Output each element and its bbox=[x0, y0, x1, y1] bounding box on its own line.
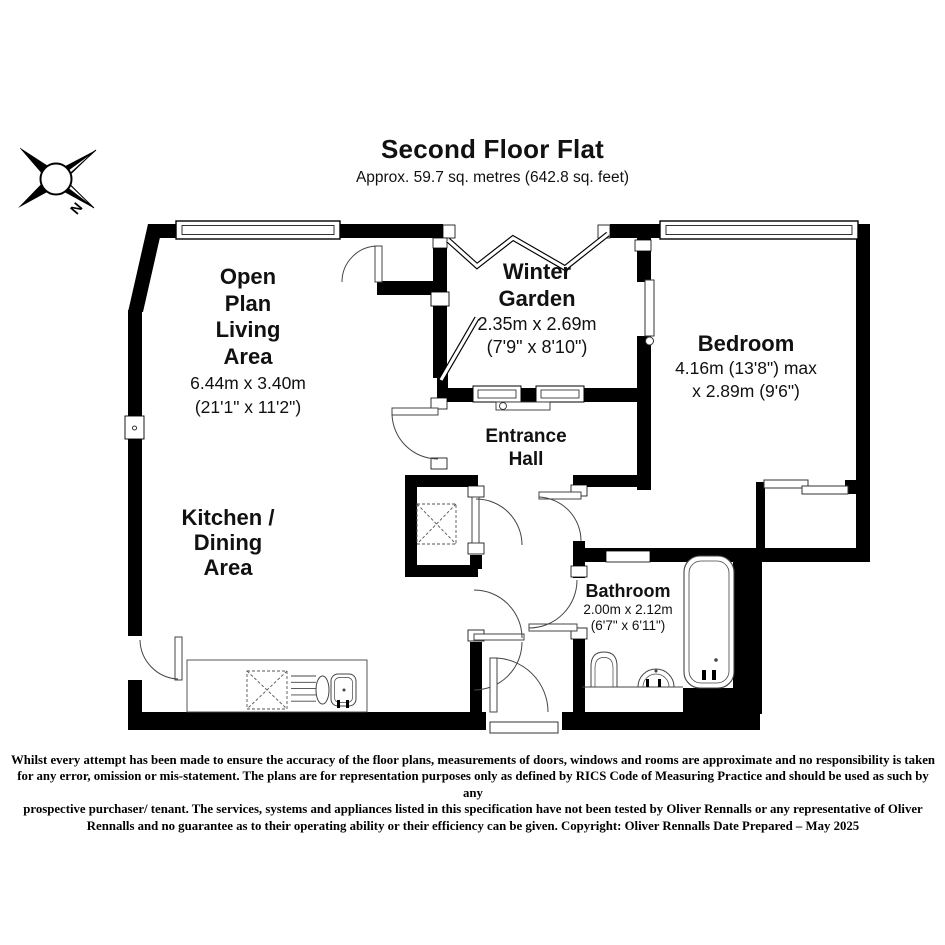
bedroom-dims-line1: 4.16m (13'8") max bbox=[646, 358, 846, 379]
disclaimer-line: Rennalls and no guarantee as to their op… bbox=[8, 818, 938, 834]
bedroom-door bbox=[539, 492, 581, 541]
kitchen-fixtures bbox=[187, 660, 367, 712]
bedroom-closet-slider bbox=[802, 486, 848, 494]
sink-icon bbox=[638, 669, 674, 687]
bedroom-closet-slider bbox=[764, 480, 808, 488]
label-living-area: Open Plan Living Area 6.44m x 3.40m (21'… bbox=[148, 264, 348, 418]
jamb bbox=[468, 486, 484, 497]
living-wg-door bbox=[342, 246, 382, 282]
jamb bbox=[433, 238, 447, 248]
winter-garden-dims-imperial: (7'9" x 8'10") bbox=[437, 336, 637, 358]
jamb bbox=[468, 543, 484, 554]
jamb bbox=[571, 566, 587, 577]
label-entrance-hall: Entrance Hall bbox=[426, 425, 626, 471]
disclaimer-line: prospective purchaser/ tenant. The servi… bbox=[8, 801, 938, 817]
wg-bedroom-slider bbox=[645, 280, 654, 336]
disclaimer-line: for any error, omission or mis-statement… bbox=[8, 768, 938, 801]
jamb bbox=[443, 225, 455, 238]
winter-garden-dims-metric: 2.35m x 2.69m bbox=[437, 313, 637, 335]
jamb bbox=[431, 398, 447, 409]
bathroom-dims-imperial: (6'7" x 6'11") bbox=[553, 618, 703, 633]
label-kitchen: Kitchen / Dining Area bbox=[128, 505, 328, 580]
label-bathroom: Bathroom 2.00m x 2.12m (6'7" x 6'11") bbox=[553, 581, 703, 633]
entrance-door bbox=[488, 658, 560, 733]
bedroom-dims-line2: x 2.89m (9'6") bbox=[646, 381, 846, 402]
hall-cupboard bbox=[417, 504, 456, 544]
label-bedroom: Bedroom 4.16m (13'8") max x 2.89m (9'6") bbox=[646, 331, 846, 402]
disclaimer: Whilst every attempt has been made to en… bbox=[8, 752, 938, 834]
entrance-step bbox=[490, 722, 558, 733]
hall-closet-door bbox=[472, 497, 522, 545]
toilet-icon bbox=[591, 652, 617, 687]
living-dims-metric: 6.44m x 3.40m bbox=[148, 372, 348, 394]
bathroom-dims-metric: 2.00m x 2.12m bbox=[553, 602, 703, 617]
bathroom-shelf bbox=[606, 551, 650, 562]
kitchen-balcony-door bbox=[140, 637, 182, 680]
living-dims-imperial: (21'1" x 11'2") bbox=[148, 396, 348, 418]
floorplan-page: N Second Floor Flat Approx. 59.7 sq. met… bbox=[0, 0, 945, 945]
disclaimer-line: Whilst every attempt has been made to en… bbox=[8, 752, 938, 768]
label-winter-garden: Winter Garden 2.35m x 2.69m (7'9" x 8'10… bbox=[437, 258, 637, 358]
jamb bbox=[635, 240, 651, 251]
